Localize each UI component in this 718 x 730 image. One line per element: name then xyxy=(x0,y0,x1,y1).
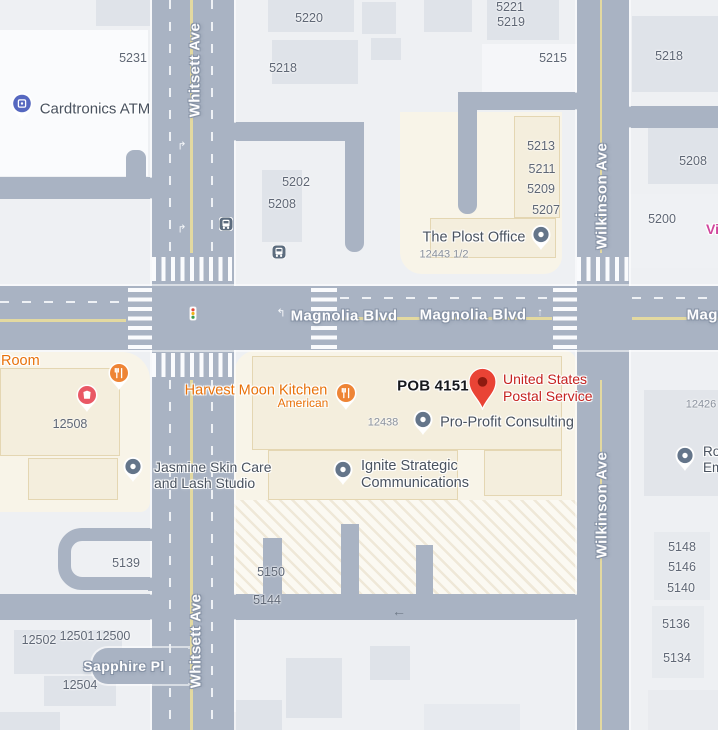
place-pro-profit-consulting[interactable]: Pro-Profit Consulting xyxy=(440,415,574,432)
place-ro-em[interactable]: Ro Em xyxy=(703,444,718,475)
place-united-states-postal-service[interactable]: United States Postal Service xyxy=(503,371,592,405)
place-vi[interactable]: Vi xyxy=(706,221,718,237)
place-harvest-moon-kitchen-cuisine[interactable]: American xyxy=(278,397,329,411)
place-cardtronics-atm[interactable]: Cardtronics ATM xyxy=(40,100,151,117)
map-canvas[interactable]: 5231522052185221521952155218520252085213… xyxy=(0,0,718,730)
place-jasmine-skin-care[interactable]: Jasmine Skin Care and Lash Studio xyxy=(154,459,272,491)
place-the-plost-office[interactable]: The Plost Office xyxy=(423,230,526,247)
place-labels-layer: Cardtronics ATMThe Plost OfficeRoomHarve… xyxy=(0,0,718,730)
place-room[interactable]: Room xyxy=(1,353,40,370)
place-ignite-strategic-communications[interactable]: Ignite Strategic Communications xyxy=(361,458,469,492)
place-pob-4151[interactable]: POB 4151 xyxy=(397,377,469,394)
